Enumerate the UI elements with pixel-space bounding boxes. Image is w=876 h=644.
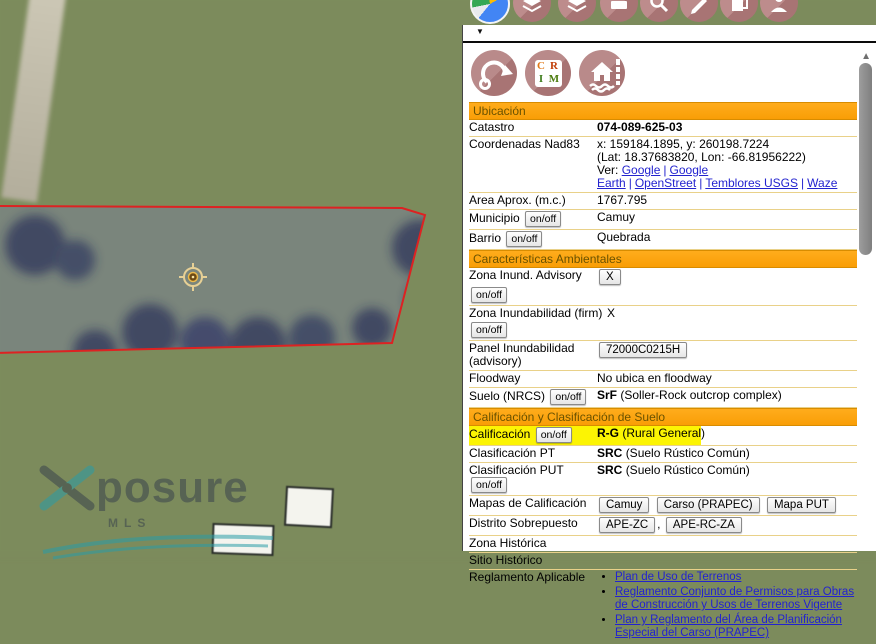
mapas-label: Mapas de Calificación bbox=[469, 497, 597, 510]
section-ubicacion: Ubicación bbox=[469, 102, 857, 120]
municipio-label: Municipio on/off bbox=[469, 211, 597, 227]
row-distrito: Distrito Sobrepuesto APE-ZC, APE-RC-ZA bbox=[469, 516, 857, 536]
zona-firm-value: X bbox=[597, 307, 857, 320]
row-area: Area Aprox. (m.c.) 1767.795 bbox=[469, 193, 857, 210]
ver-prefix: Ver: bbox=[597, 163, 618, 177]
floodway-value: No ubica en floodway bbox=[597, 372, 857, 385]
mapa-camuy-button[interactable]: Camuy bbox=[599, 497, 649, 513]
reglamento-link-plan-uso[interactable]: Plan de Uso de Terrenos bbox=[615, 571, 741, 583]
zona-firm-onoff-button[interactable]: on/off bbox=[471, 322, 507, 338]
row-barrio: Barrio on/off Quebrada bbox=[469, 230, 857, 250]
clasificacion-put-label: Clasificación PUT on/off bbox=[469, 464, 597, 493]
row-zona-advisory: Zona Inund. Advisory X on/off bbox=[469, 268, 857, 306]
zona-advisory-x-button[interactable]: X bbox=[599, 269, 621, 285]
quick-actions: C R I M bbox=[463, 43, 876, 99]
row-municipio: Municipio on/off Camuy bbox=[469, 210, 857, 230]
zona-historica-label: Zona Histórica bbox=[469, 537, 597, 550]
calificacion-onoff-button[interactable]: on/off bbox=[536, 427, 572, 443]
section-ambientales: Características Ambientales bbox=[469, 250, 857, 268]
row-floodway: Floodway No ubica en floodway bbox=[469, 371, 857, 388]
zona-firm-label: Zona Inundabilidad (firm) bbox=[469, 307, 597, 320]
barrio-onoff-button[interactable]: on/off bbox=[506, 231, 542, 247]
crim-letter: M bbox=[549, 74, 559, 85]
collapse-arrow-icon[interactable]: ▼ bbox=[476, 27, 484, 37]
area-value: 1767.795 bbox=[597, 194, 857, 207]
row-mapas: Mapas de Calificación Camuy Carso (PRAPE… bbox=[469, 496, 857, 516]
municipio-onoff-button[interactable]: on/off bbox=[525, 211, 561, 227]
panel-inund-button[interactable]: 72000C0215H bbox=[599, 342, 687, 358]
crim-letter: C bbox=[537, 61, 545, 72]
floodway-label: Floodway bbox=[469, 372, 597, 385]
barrio-value: Quebrada bbox=[597, 231, 857, 244]
barrio-label: Barrio on/off bbox=[469, 231, 597, 247]
row-reglamento: Reglamento Aplicable Plan de Uso de Terr… bbox=[469, 570, 857, 644]
row-catastro: Catastro 074-089-625-03 bbox=[469, 120, 857, 137]
coordenadas-xy: x: 159184.1895, y: 260198.7224 bbox=[597, 137, 769, 151]
row-coordenadas: Coordenadas Nad83 x: 159184.1895, y: 260… bbox=[469, 137, 857, 193]
reglamento-label: Reglamento Aplicable bbox=[469, 571, 597, 584]
reglamento-link-prapec[interactable]: Plan y Reglamento del Área de Planificac… bbox=[615, 614, 842, 639]
section-calificacion: Calificación y Clasificación de Suelo bbox=[469, 408, 857, 426]
calificacion-value: R-G (Rural General) bbox=[597, 427, 857, 440]
coordenadas-label: Coordenadas Nad83 bbox=[469, 138, 597, 151]
info-panel: ▼ C R I M bbox=[462, 25, 876, 551]
link-openstreet[interactable]: OpenStreet bbox=[635, 176, 696, 190]
link-waze[interactable]: Waze bbox=[807, 176, 837, 190]
scroll-up-arrow-icon[interactable]: ▲ bbox=[861, 52, 871, 62]
clasificacion-pt-label: Clasificación PT bbox=[469, 447, 597, 460]
row-suelo: Suelo (NRCS) on/off SrF (Soller-Rock out… bbox=[469, 388, 857, 408]
distrito-ape-zc-button[interactable]: APE-ZC bbox=[599, 517, 655, 533]
area-label: Area Aprox. (m.c.) bbox=[469, 194, 597, 207]
row-panel-inund: Panel Inundabilidad (advisory) 72000C021… bbox=[469, 341, 857, 371]
clasificacion-put-onoff-button[interactable]: on/off bbox=[471, 477, 507, 493]
coordenadas-latlon: (Lat: 18.37683820, Lon: -66.81956222) bbox=[597, 150, 806, 164]
link-temblores-usgs[interactable]: Temblores USGS bbox=[705, 176, 798, 190]
zona-advisory-label: Zona Inund. Advisory bbox=[469, 269, 597, 285]
distrito-label: Distrito Sobrepuesto bbox=[469, 517, 597, 530]
crim-letter: R bbox=[550, 61, 558, 72]
catastro-value: 074-089-625-03 bbox=[597, 120, 682, 134]
flood-house-icon[interactable] bbox=[579, 50, 625, 96]
row-sitio-historico: Sitio Histórico bbox=[469, 553, 857, 570]
row-zona-firm: Zona Inundabilidad (firm) X on/off bbox=[469, 306, 857, 341]
clasificacion-put-value: SRC (Suelo Rústico Común) bbox=[597, 464, 857, 477]
panel-inund-label: Panel Inundabilidad (advisory) bbox=[469, 342, 597, 368]
row-clasificacion-pt: Clasificación PT SRC (Suelo Rústico Comú… bbox=[469, 446, 857, 463]
calificacion-label: Calificación on/off bbox=[469, 427, 597, 443]
zona-advisory-onoff-button[interactable]: on/off bbox=[471, 287, 507, 303]
mapa-put-button[interactable]: Mapa PUT bbox=[767, 497, 836, 513]
reglamento-link-conjunto[interactable]: Reglamento Conjunto de Permisos para Obr… bbox=[615, 586, 854, 611]
row-zona-historica: Zona Histórica bbox=[469, 536, 857, 553]
suelo-value: SrF (Soller-Rock outcrop complex) bbox=[597, 389, 857, 402]
suelo-onoff-button[interactable]: on/off bbox=[550, 389, 586, 405]
link-google[interactable]: Google bbox=[622, 163, 661, 177]
crim-logo-icon[interactable]: C R I M bbox=[525, 50, 571, 96]
row-clasificacion-put: Clasificación PUT on/off SRC (Suelo Rúst… bbox=[469, 463, 857, 496]
clasificacion-pt-value: SRC (Suelo Rústico Común) bbox=[597, 447, 857, 460]
share-icon[interactable] bbox=[471, 50, 517, 96]
catastro-label: Catastro bbox=[469, 121, 597, 134]
row-calificacion: Calificación on/off R-G (Rural General) bbox=[469, 426, 857, 446]
municipio-value: Camuy bbox=[597, 211, 857, 224]
distrito-ape-rc-za-button[interactable]: APE-RC-ZA bbox=[666, 517, 742, 533]
crim-letter: I bbox=[539, 74, 543, 85]
sitio-historico-label: Sitio Histórico bbox=[469, 554, 597, 567]
suelo-label: Suelo (NRCS) on/off bbox=[469, 389, 597, 405]
collapse-strip: ▼ bbox=[463, 25, 876, 43]
scrollbar-thumb[interactable] bbox=[859, 63, 872, 255]
parcel-details: Ubicación Catastro 074-089-625-03 Coorde… bbox=[469, 102, 857, 644]
mapa-carso-button[interactable]: Carso (PRAPEC) bbox=[657, 497, 760, 513]
